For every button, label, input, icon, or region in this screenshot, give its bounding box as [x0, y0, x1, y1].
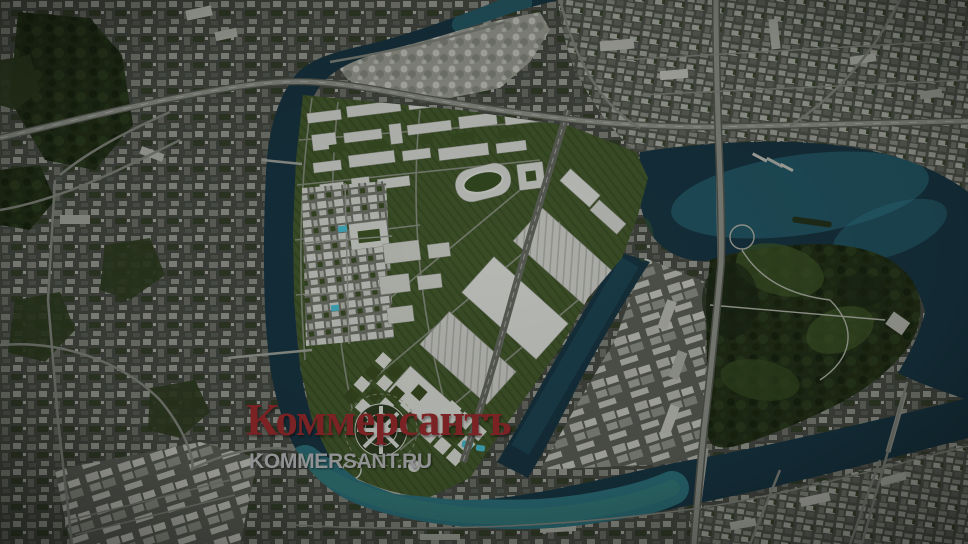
satellite-map: [0, 0, 968, 544]
screenshot-root: Коммерсантъ KOMMERSANT.RU: [0, 0, 968, 544]
kommersant-site-url: KOMMERSANT.RU: [249, 451, 432, 472]
vignette: [0, 0, 968, 544]
kommersant-logo: Коммерсантъ: [246, 398, 511, 443]
